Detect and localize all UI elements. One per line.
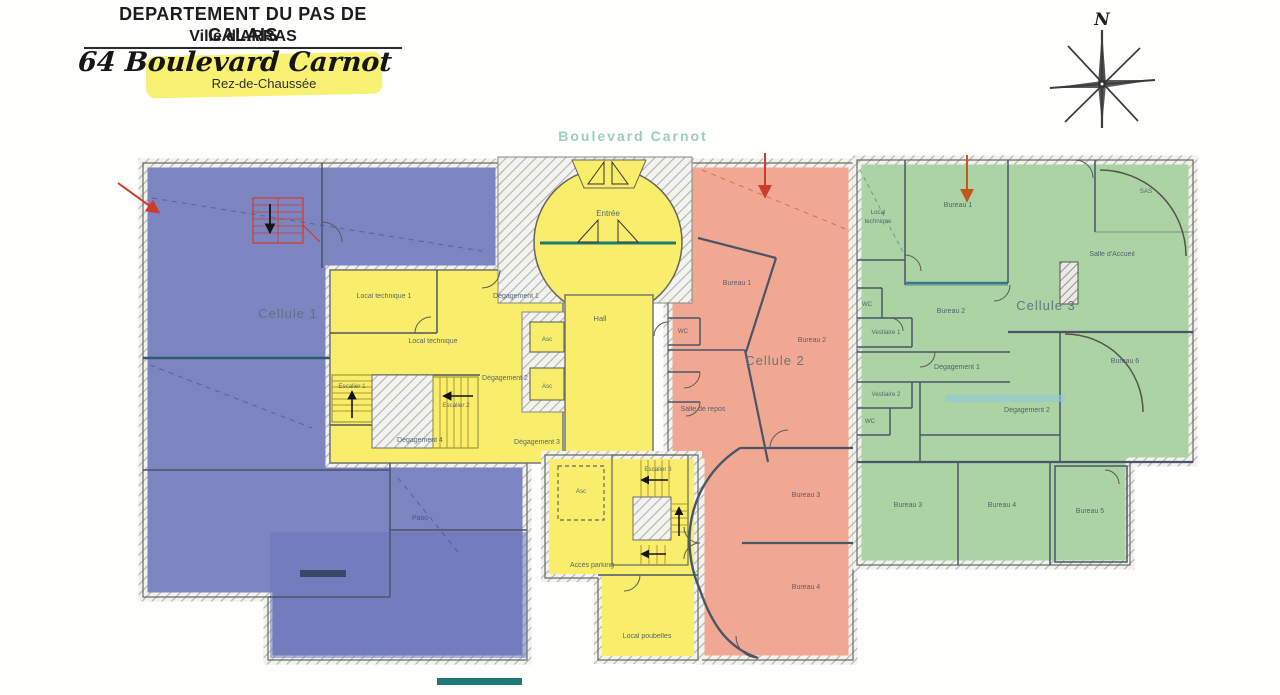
zone-label-cellule1: Cellule 1 — [258, 306, 318, 321]
compass-rose-icon: N — [1050, 10, 1155, 128]
room-label-degagement-2: Dégagement 2 — [482, 375, 528, 382]
room-label-hall: Hall — [594, 314, 607, 323]
room-label-local-technique: Local technique — [408, 338, 457, 345]
room-label-degagement-3: Dégagement 3 — [514, 439, 560, 446]
room-label-c3-degagement-1: Dégagement 1 — [934, 364, 980, 371]
zone-label-cellule2: Cellule 2 — [745, 353, 805, 368]
teal-accent-bar — [437, 678, 522, 685]
room-label-c3-bureau-3: Bureau 3 — [894, 502, 923, 509]
room-label-c3-local-technique-l2: technique — [865, 218, 892, 225]
room-label-c3-bureau-2: Bureau 2 — [937, 308, 966, 315]
elevator-bank-core — [522, 312, 570, 412]
room-label-c2-bureau-1: Bureau 1 — [723, 280, 752, 287]
room-label-escalier-2: Escalier 2 — [442, 402, 470, 409]
room-label-c2-bureau-3: Bureau 3 — [792, 492, 821, 499]
room-label-c3-vestiaire-1: Vestiaire 1 — [872, 329, 901, 336]
floor-plan-svg: Cellule 1 Cellule 2 Cellule 3 Entrée Hal… — [0, 0, 1280, 695]
room-label-c3-local-technique-l1: Local — [871, 209, 886, 216]
room-label-c3-degagement-2: Dégagement 2 — [1004, 407, 1050, 414]
room-label-acces-parking: Accès parking — [570, 562, 614, 569]
room-label-c3-bureau-6: Bureau 6 — [1111, 358, 1140, 365]
room-label-c2-salle-de-repos: Salle de repos — [681, 406, 726, 413]
room-label-asc-2: Asc — [542, 383, 552, 390]
room-label-c3-bureau-1: Bureau 1 — [944, 202, 973, 209]
room-label-c3-salle-accueil: Salle d'Accueil — [1089, 251, 1135, 258]
room-label-c3-vestiaire-2: Vestiaire 2 — [872, 391, 901, 398]
room-label-c3-bureau-5: Bureau 5 — [1076, 508, 1105, 515]
service-block-south — [545, 455, 698, 660]
north-label: N — [1093, 10, 1111, 30]
zone-label-cellule3: Cellule 3 — [1016, 298, 1076, 313]
room-label-degagement-1: Dégagement 1 — [493, 293, 539, 300]
room-label-local-poubelles: Local poubelles — [623, 633, 672, 640]
room-label-escalier-3: Escalier 3 — [644, 466, 672, 473]
room-label-entree: Entrée — [596, 209, 620, 218]
scanned-floor-plan-page: DEPARTEMENT DU PAS DE CALAIS Ville d'ARR… — [0, 0, 1280, 695]
room-label-c2-bureau-4: Bureau 4 — [792, 584, 821, 591]
room-label-degagement-4: Dégagement 4 — [397, 437, 443, 444]
room-label-asc-3: Asc — [576, 488, 586, 495]
room-label-escalier-1: Escalier 1 — [338, 383, 366, 390]
room-label-patio: Patio — [412, 515, 428, 522]
room-label-c2-bureau-2: Bureau 2 — [798, 337, 827, 344]
room-label-asc-1: Asc — [542, 336, 552, 343]
room-label-c3-sas: SAS — [1140, 188, 1152, 195]
room-label-c3-wc-2: WC — [865, 418, 876, 425]
hall-corridor — [565, 295, 653, 463]
room-label-c3-wc-1: WC — [862, 301, 873, 308]
room-label-c2-wc: WC — [678, 328, 689, 335]
room-label-c3-bureau-4: Bureau 4 — [988, 502, 1017, 509]
room-label-local-technique-1: Local technique 1 — [357, 293, 412, 300]
